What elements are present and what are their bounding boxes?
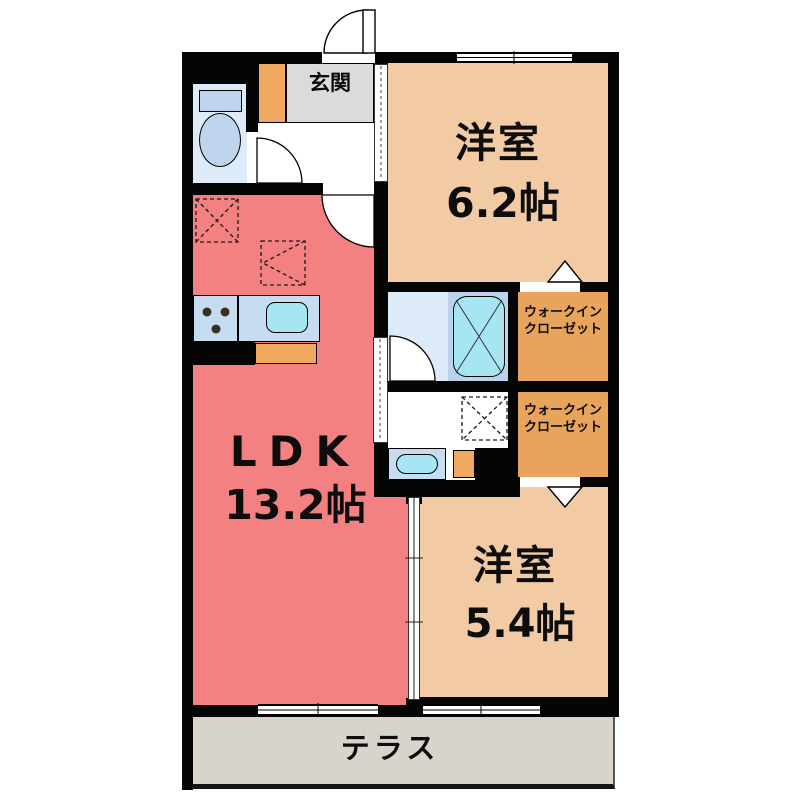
wic1-door-opening [520,282,580,292]
kitchen-sink [266,302,308,333]
room-bedroom2 [420,487,608,697]
washroom-sliding-door [373,337,388,443]
bedroom2-name-label: 洋室 [420,545,610,587]
bedroom2-size-label: 5.4帖 [420,603,620,645]
terrace-label: テラス [290,733,490,763]
ldk-size-label: 13.2帖 [193,484,398,527]
room-bedroom1 [388,63,608,282]
bathtub-icon [453,296,505,377]
ldk-bedroom2-partition [408,497,420,700]
ldk-door-opening [323,183,374,195]
bedroom1-name-label: 洋室 [388,122,608,165]
wall-partition-stub-bottom [406,698,422,717]
wall-bath-right [508,292,518,480]
left-outer-wall [182,52,193,790]
wall-toilet-right [246,63,258,132]
kitchen-counter-divider [237,296,239,341]
hallway [247,123,374,183]
washbasin-bowl-icon [396,454,438,474]
entrance-opening [322,52,375,63]
wic2-door-opening [520,477,580,487]
bedroom1-size-label: 6.2帖 [388,182,618,225]
wic1-label-line2: クローゼット [518,323,608,337]
wic2-label-line2: クローゼット [518,421,608,435]
floor-plan: 玄関 洋室 6.2帖 ウォークイン クローゼット ウォークイン クローゼット L… [0,0,800,800]
wall-kitchen-stub [193,342,255,365]
bedroom1-sliding-door [374,64,388,182]
wall-bath-wic-divider [374,381,608,392]
window-ldk-terrace [258,704,378,716]
toilet-tank [199,90,242,112]
wic2-label-line1: ウォークイン [518,404,608,418]
wic1-label-line1: ウォークイン [518,306,608,320]
wall-washroom-corner [475,448,508,480]
ldk-name-label: LDK [200,430,390,474]
wall-hall-bottom [182,183,323,195]
window-bedroom1-top [457,52,572,63]
kitchen-cabinet [255,343,317,364]
entrance-door-leaf [363,10,375,53]
genkan-label: 玄関 [286,72,374,94]
window-bedroom2-terrace [423,704,540,716]
genkan-shoe-cabinet [258,63,286,123]
toilet-bowl-icon [199,113,241,167]
entrance-door-arc [324,10,367,53]
washroom-cabinet [453,450,475,478]
